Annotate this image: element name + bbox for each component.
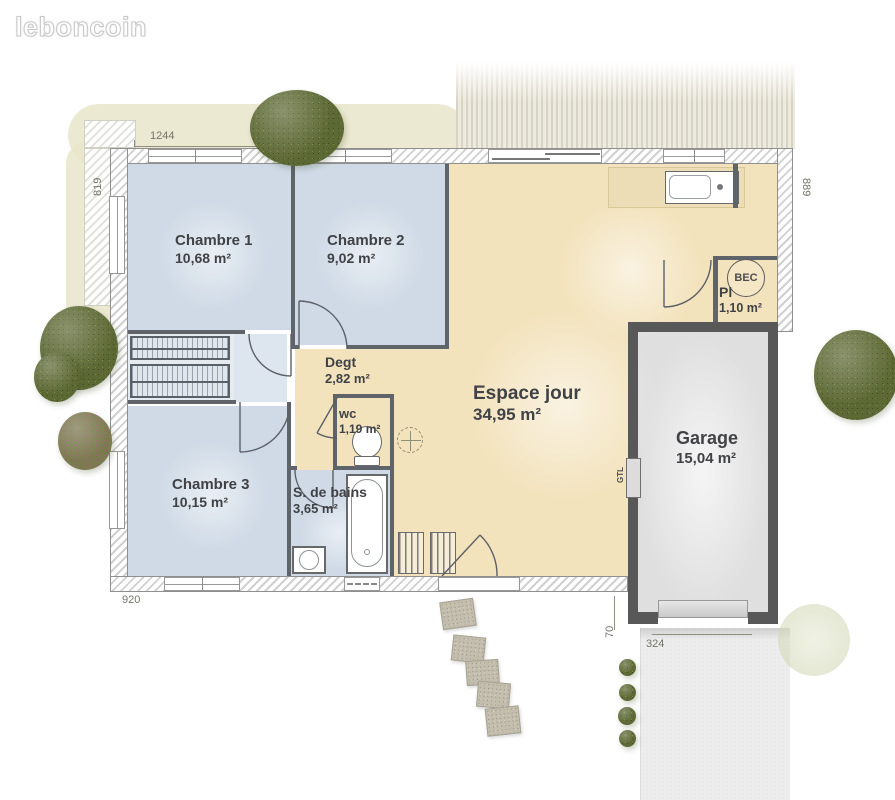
- symbol-cross-line: [401, 440, 421, 441]
- dimension-label-top: 1244: [150, 130, 174, 142]
- gtl-box: GTL: [626, 458, 641, 498]
- door-leaf: [317, 398, 337, 433]
- room-label-espace-jour: Espace jour 34,95 m²: [473, 382, 581, 426]
- room-label-degagement: Degt 2,82 m²: [325, 354, 370, 387]
- dimension-label-garage-offset: 70: [604, 626, 616, 638]
- room-name: Degt: [325, 354, 370, 371]
- room-area: 3,65 m²: [293, 501, 367, 517]
- flowering-bush: [58, 412, 112, 470]
- floor-plan-canvas: GTL BEC 1244 819 889 920 70 324 Chambre …: [0, 0, 895, 800]
- dimension-label-right: 889: [800, 178, 812, 196]
- door-swing-arcs: [0, 0, 895, 800]
- dimension-line: [134, 146, 262, 147]
- water-heater-label: BEC: [734, 272, 757, 284]
- room-label-salle-de-bains: S. de bains 3,65 m²: [293, 484, 367, 517]
- room-area: 10,15 m²: [172, 494, 250, 511]
- room-label-placard: Pl 1,10 m²: [719, 284, 762, 316]
- room-label-chambre-3: Chambre 3 10,15 m²: [172, 476, 250, 511]
- ceiling-light-symbol: [397, 427, 423, 453]
- room-label-garage: Garage 15,04 m²: [676, 428, 738, 468]
- room-area: 10,68 m²: [175, 250, 253, 267]
- dimension-tick: [134, 140, 135, 147]
- door-leaf: [442, 535, 480, 576]
- bush: [250, 90, 344, 166]
- room-area: 34,95 m²: [473, 405, 581, 426]
- room-name: S. de bains: [293, 484, 367, 501]
- room-name: wc: [339, 406, 380, 422]
- room-name: Chambre 2: [327, 232, 405, 250]
- room-area: 15,04 m²: [676, 450, 738, 468]
- room-name: Garage: [676, 428, 738, 450]
- door-arc: [664, 260, 711, 307]
- dimension-label-garage-door: 324: [646, 638, 664, 650]
- room-area: 2,82 m²: [325, 371, 370, 387]
- room-area: 1,19 m²: [339, 422, 380, 437]
- door-arc: [240, 402, 290, 452]
- door-arc: [249, 334, 291, 376]
- room-area: 1,10 m²: [719, 301, 762, 316]
- room-label-wc: wc 1,19 m²: [339, 406, 380, 436]
- bush: [814, 330, 895, 420]
- room-area: 9,02 m²: [327, 250, 405, 267]
- dimension-line: [652, 634, 752, 635]
- room-name: Espace jour: [473, 382, 581, 405]
- dimension-label-bottom: 920: [122, 594, 140, 606]
- bush: [34, 352, 80, 402]
- leboncoin-logo: leboncoin: [15, 12, 147, 43]
- gtl-label: GTL: [616, 467, 625, 483]
- room-label-chambre-1: Chambre 1 10,68 m²: [175, 232, 253, 267]
- door-arc: [299, 301, 347, 349]
- room-label-chambre-2: Chambre 2 9,02 m²: [327, 232, 405, 267]
- door-arc: [480, 535, 497, 576]
- room-name: Chambre 1: [175, 232, 253, 250]
- room-name: Pl: [719, 284, 762, 301]
- symbol-cross-line: [410, 431, 411, 451]
- dimension-label-left: 819: [92, 178, 104, 196]
- room-name: Chambre 3: [172, 476, 250, 494]
- door-arc: [317, 433, 337, 438]
